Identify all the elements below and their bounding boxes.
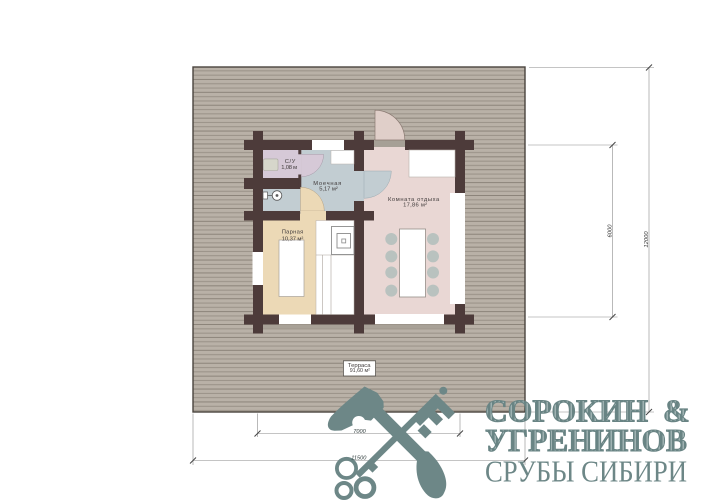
svg-text:7000: 7000 <box>353 429 366 435</box>
svg-text:91,60 м²: 91,60 м² <box>350 368 370 374</box>
svg-text:УГРЕНИНОВ: УГРЕНИНОВ <box>485 422 687 458</box>
svg-text:5,17 м²: 5,17 м² <box>319 187 338 193</box>
svg-text:1,08 м: 1,08 м <box>281 165 297 171</box>
svg-text:Парная: Парная <box>282 230 304 236</box>
svg-text:10,37 м²: 10,37 м² <box>282 237 304 243</box>
svg-text:СРУБЫ СИБИРИ: СРУБЫ СИБИРИ <box>485 455 687 489</box>
svg-text:11500: 11500 <box>351 455 367 461</box>
svg-text:17,86 м²: 17,86 м² <box>403 203 427 209</box>
svg-text:12000: 12000 <box>644 231 650 248</box>
svg-text:6000: 6000 <box>608 224 614 238</box>
